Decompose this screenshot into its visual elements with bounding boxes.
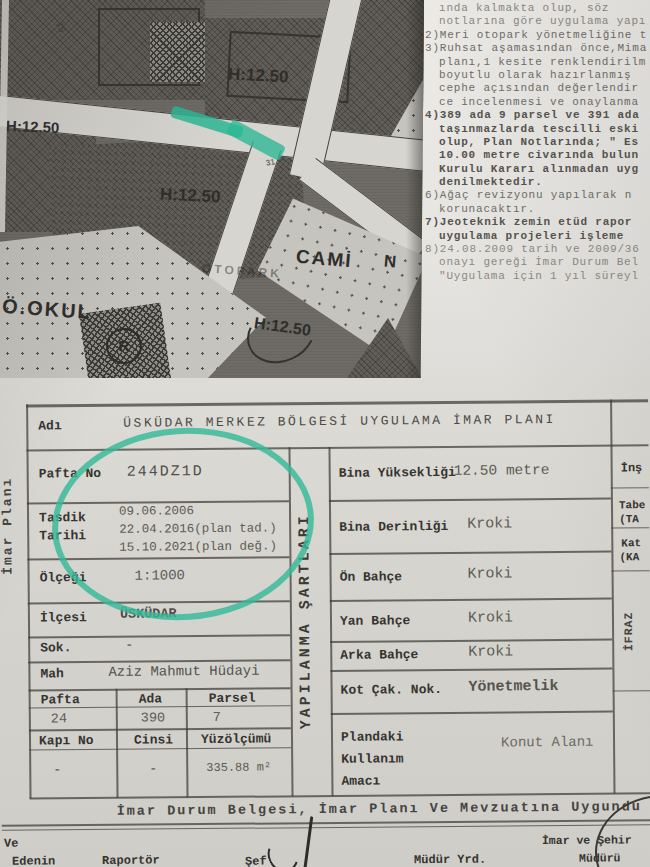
plan-note-line: ce incelenmesi ve onaylanma (425, 96, 650, 109)
imar-form: İmar Planı YAPILANMA ŞARTLARI İFRAZ Adı … (0, 378, 650, 867)
map-height-label: H:12.50 (160, 184, 221, 207)
field-plandaki-label-1: Plandaki (341, 729, 404, 745)
col-ada-header: Ada (139, 691, 163, 706)
field-on-bahce-label: Ön Bahçe (340, 569, 403, 585)
form-sheet: İmar Planı YAPILANMA ŞARTLARI İFRAZ Adı … (0, 375, 650, 867)
field-adi-label: Adı (38, 418, 62, 433)
divider (612, 570, 650, 571)
field-bina-derinligi-value: Kroki (467, 515, 512, 532)
divider (330, 597, 612, 601)
form-section-ifraz: İFRAZ (622, 589, 639, 673)
edge-tabe-label: Tabe (619, 499, 646, 511)
plan-note-line: Kurulu Kararı alınmadan uyg (425, 163, 650, 176)
divider (610, 399, 615, 793)
divider (330, 638, 612, 642)
plan-note-line: cephe açısından değerlendir (425, 82, 650, 95)
divider (116, 689, 118, 798)
map-n-label: N (383, 252, 397, 273)
divider (186, 688, 188, 797)
plan-notes-text: ında kalmakta olup, söz notlarına göre u… (425, 2, 650, 283)
field-ilcesi-label: İlçesi (40, 610, 87, 625)
plan-note-line: 4)389 ada 9 parsel ve 391 ada (425, 109, 650, 122)
plan-note-line: 10.00 metre civarında bulun (425, 149, 650, 162)
field-kot-cak-value: Yönetmelik (468, 678, 558, 696)
plan-note-line: taşınmazlarda tescilli eski (425, 123, 650, 136)
plan-notes-paper: ında kalmakta olup, söz notlarına göre u… (400, 0, 650, 402)
plan-note-line: 3)Ruhsat aşamasından önce,Mima (425, 42, 650, 55)
edge-ins-label: İnş (621, 461, 643, 475)
plan-note-line: ında kalmakta olup, söz (425, 2, 650, 15)
field-bina-yuksekligi-value: 12.50 metre (454, 462, 550, 479)
plan-note-line: uygulama projeleri işleme (425, 230, 650, 243)
field-sok-value: - (125, 638, 133, 653)
col-pafta-header: Pafta (41, 692, 80, 707)
field-yan-bahce-value: Kroki (468, 609, 513, 626)
divider (331, 710, 613, 714)
col-cinsi-value: - (149, 761, 157, 776)
statement-line: İmar Durum Belgesi, İmar Planı Ve Mevzua… (117, 799, 642, 819)
sig-sef-label: Şef (245, 855, 267, 867)
sig-edenin-label: Edenin (12, 854, 55, 867)
field-mah-value: Aziz Mahmut Hüdayi (108, 663, 259, 680)
field-yan-bahce-label: Yan Bahçe (340, 613, 410, 629)
col-kapi-no-value: - (53, 762, 61, 777)
col-cinsi-header: Cinsi (134, 732, 173, 747)
plan-note-line: planı,1 kesite renklendirilm (425, 56, 650, 69)
divider (611, 487, 649, 488)
divider (613, 690, 650, 691)
pen-signature-curve (262, 834, 303, 867)
sig-ve-label: Ve (4, 837, 19, 851)
plan-note-line: boyutlu olarak hazırlanmış (425, 69, 650, 82)
document-photo: ında kalmakta olup, söz notlarına göre u… (0, 0, 650, 867)
divider (330, 667, 612, 671)
plan-note-line: denilmektedir. (425, 176, 650, 189)
form-section-imar-plani: İmar Planı (0, 426, 23, 626)
col-pafta-value: 24 (51, 711, 67, 726)
field-mah-label: Mah (40, 666, 64, 681)
field-bina-yuksekligi-label: Bina Yüksekliği (339, 465, 456, 481)
field-on-bahce-value: Kroki (468, 565, 513, 582)
col-ada-value: 390 (141, 710, 165, 725)
edge-kat-label: Kat (621, 537, 641, 549)
edge-ka-label: (KA (619, 551, 639, 563)
plan-note-line: 6)Ağaç revizyonu yapılarak n (425, 189, 650, 202)
col-parsel-header: Parsel (209, 691, 256, 706)
plan-note-line: olup, Plan Notlarında; " Es (425, 136, 650, 149)
field-arka-bahce-value: Kroki (468, 643, 513, 660)
plan-note-line: "Uygulama için 1 yıl süreyl (425, 270, 650, 283)
field-sok-label: Sok. (40, 640, 71, 655)
col-kapi-no-header: Kapı No (39, 733, 94, 748)
divider (28, 634, 290, 638)
plan-note-line: korunacaktır. (425, 203, 650, 216)
map-height-label: H:12.50 (228, 64, 289, 87)
divider (26, 399, 648, 407)
divider (329, 498, 611, 502)
map-hatched-building (150, 22, 208, 82)
edge-ta-label: (TA (619, 513, 639, 525)
plan-note-line: notlarına göre uygulama yapı (425, 15, 650, 28)
zoning-map: R H:12.50 H:12.50 H:12.50 H:12.50 CAMİ N… (0, 0, 424, 382)
plan-note-line: onayı gereği İmar Durum Bel (425, 256, 650, 269)
field-kot-cak-label: Kot Çak. Nok. (341, 682, 443, 698)
field-plandaki-label-3: Amacı (341, 774, 380, 789)
col-yuzolcumu-header: Yüzölçümü (201, 731, 271, 747)
col-parsel-value: 7 (213, 710, 221, 725)
field-arka-bahce-label: Arka Bahçe (340, 647, 418, 663)
col-yuzolcumu-value: 335.88 m² (206, 760, 271, 775)
field-plandaki-label-2: Kullanım (341, 751, 404, 767)
sig-mudur-yrd-label: Müdür Yrd. (414, 853, 486, 867)
plan-note-line: 7)Jeoteknik zemin etüd rapor (425, 216, 650, 229)
divider (30, 792, 650, 799)
plan-note-line: 2)Meri otopark yönetmeliğine t (425, 29, 650, 42)
plan-note-line: 8)24.08.2009 tarih ve 2009/36 (425, 243, 650, 256)
sig-raportor-label: Raportör (102, 853, 160, 867)
map-road-number: 31 (265, 157, 276, 168)
divider (611, 527, 649, 528)
divider (329, 550, 611, 554)
field-plandaki-value: Konut Alanı (501, 734, 594, 751)
map-height-label: H:12.50 (6, 117, 60, 136)
field-bina-derinligi-label: Bina Derinliği (339, 519, 448, 535)
map-building-letter: R (119, 337, 130, 354)
map-building-letter-badge: R (106, 328, 142, 364)
